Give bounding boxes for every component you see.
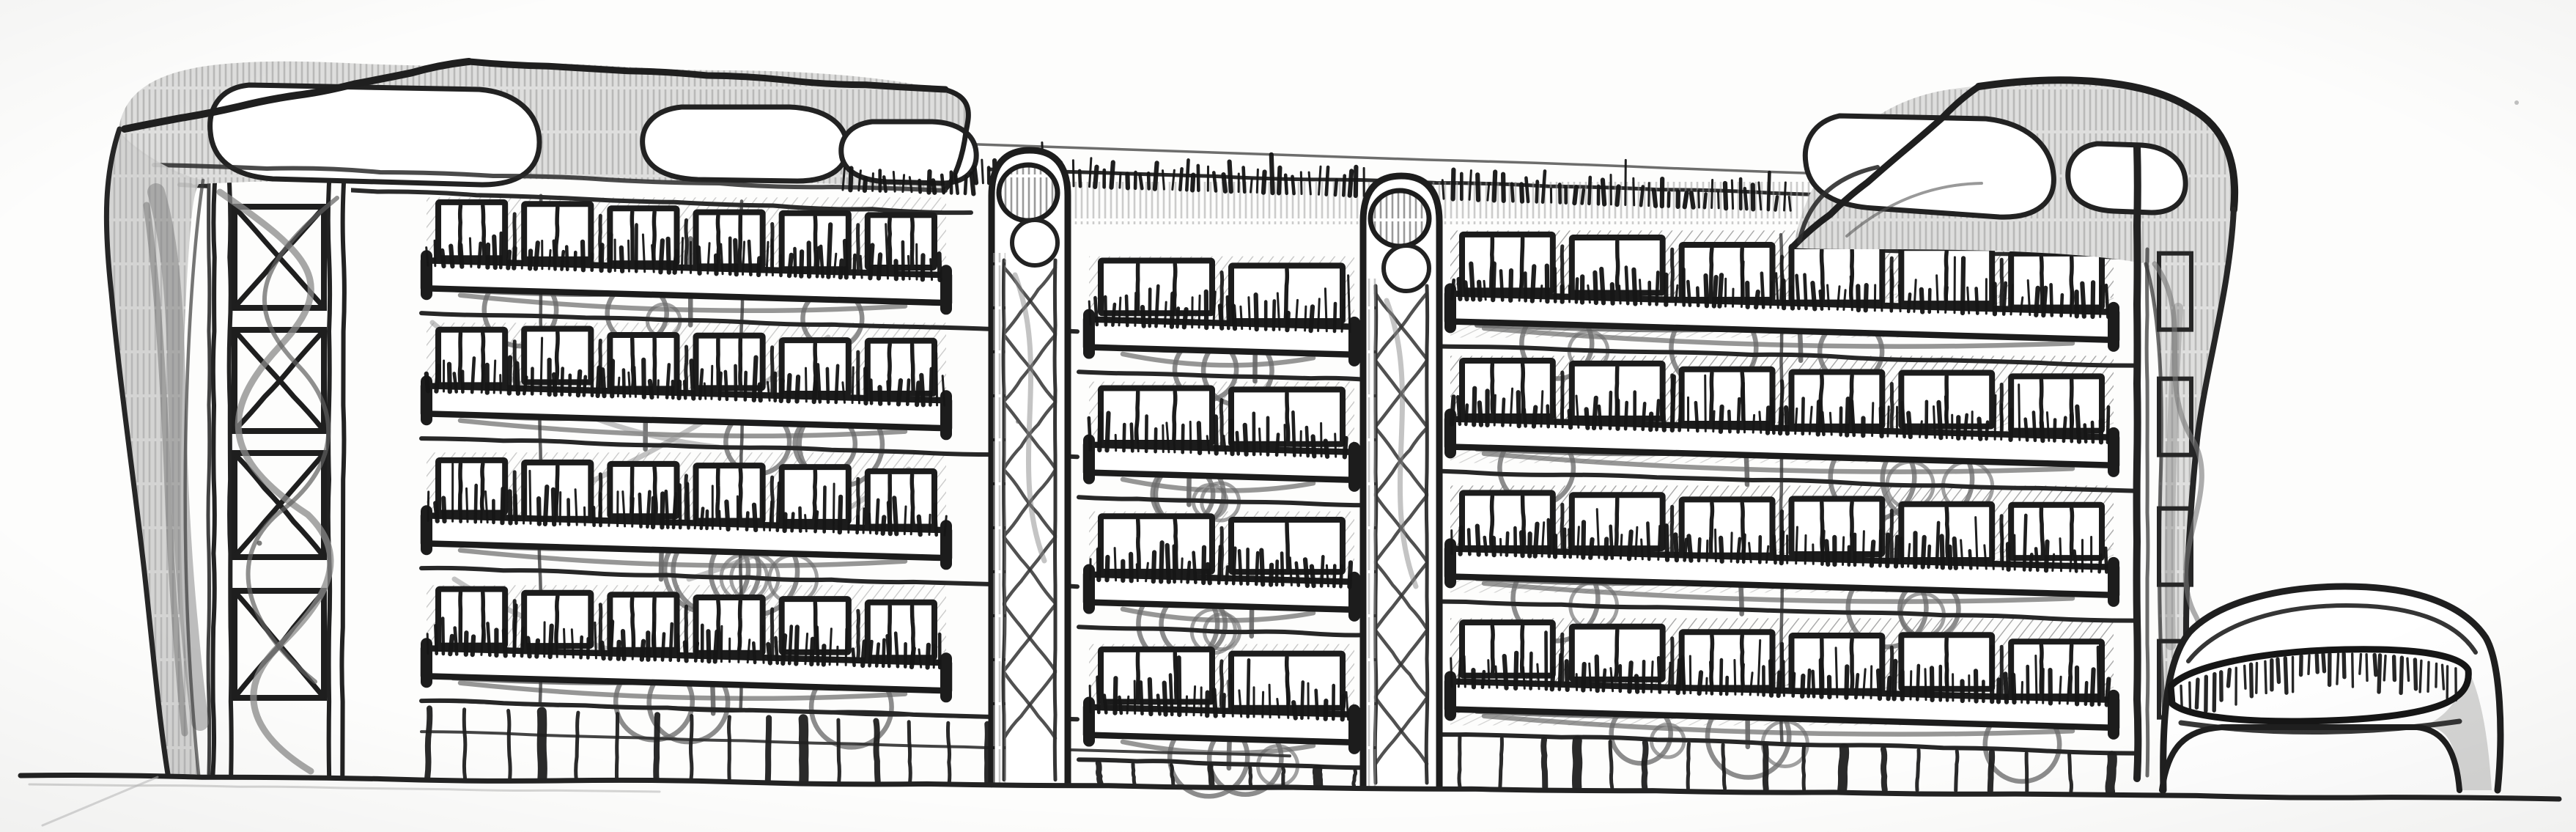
building-elevation-sketch: Green residential building elevation: fo… (0, 0, 2576, 832)
paper-vignette (0, 0, 2576, 832)
sketch-page: Green residential building elevation: fo… (0, 0, 2576, 832)
vignette (0, 0, 2576, 832)
